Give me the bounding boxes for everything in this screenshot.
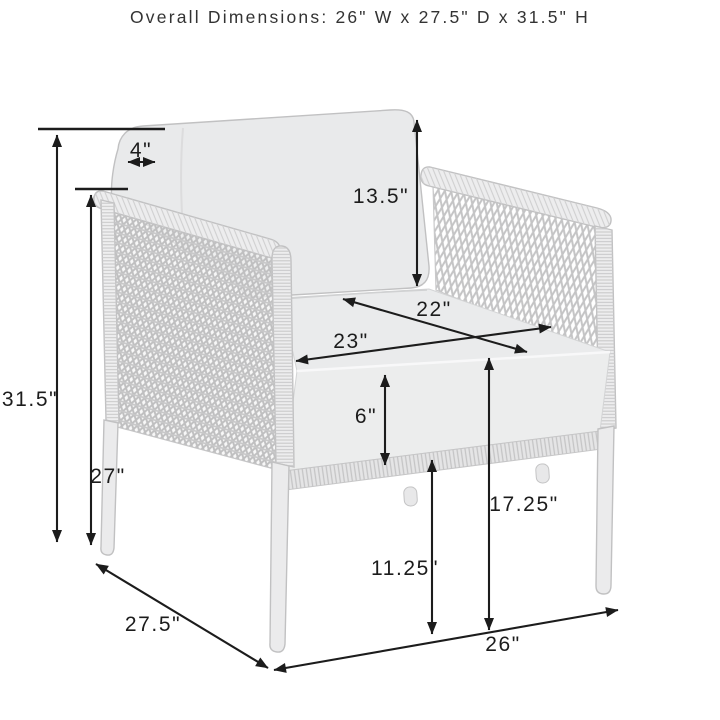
dim-label-seat-width: 22": [416, 298, 452, 321]
dim-label-under-seat-clearance: 11.25": [371, 557, 439, 580]
dim-overall-width: 26": [274, 610, 618, 670]
dim-label-seat-depth: 23": [333, 330, 369, 353]
dim-label-back-cushion-top-thickness: 4": [130, 139, 152, 162]
front-left-leg: [270, 462, 289, 652]
product-dimension-diagram: Overall Dimensions: 26" W x 27.5" D x 31…: [0, 0, 720, 720]
dim-label-overall-height: 31.5": [2, 388, 58, 411]
page-title: Overall Dimensions: 26" W x 27.5" D x 31…: [130, 7, 590, 27]
dim-arrow: [96, 564, 268, 668]
under-seat-peg-left: [403, 487, 417, 507]
dim-arrow: [274, 610, 618, 670]
under-seat-peg-right: [535, 464, 549, 484]
front-right-leg: [596, 426, 614, 594]
dim-label-seat-height: 17.25": [489, 493, 559, 516]
dim-overall-depth: 27.5": [96, 564, 268, 668]
dim-under-seat-clearance: 11.25": [371, 460, 439, 634]
dimension-diagram-canvas: Overall Dimensions: 26" W x 27.5" D x 31…: [0, 0, 720, 720]
dim-label-overall-width: 26": [485, 633, 521, 656]
dim-label-seat-cushion-thickness: 6": [355, 405, 377, 428]
dim-label-back-cushion-height: 13.5": [353, 185, 409, 208]
dim-back-cushion-top-thickness: 4": [128, 139, 155, 162]
dim-label-overall-depth: 27.5": [125, 613, 181, 636]
dim-label-arm-height: 27": [90, 465, 126, 488]
left-arm-panel: [93, 191, 294, 652]
